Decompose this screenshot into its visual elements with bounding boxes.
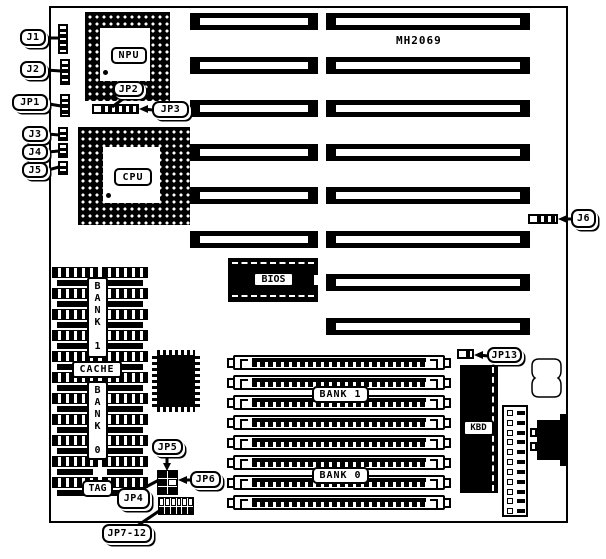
isa-slot-column-short (190, 13, 318, 248)
dip-chip (102, 414, 148, 433)
power-pin-row (507, 469, 526, 476)
jp13-jumper (457, 349, 474, 359)
callout-j5: J5 (22, 162, 48, 178)
power-pin-row (507, 479, 526, 486)
isa-slot-long (326, 13, 530, 30)
isa-slot-long (326, 144, 530, 161)
power-pin-row (507, 508, 526, 515)
power-pin-row (507, 430, 526, 437)
cache-bank1-label: B A N K 1 (87, 277, 108, 358)
dip-chip (102, 456, 148, 475)
simm-rack (233, 355, 445, 510)
isa-slot-long (326, 274, 530, 291)
kbd-label: KBD (463, 420, 494, 436)
jp2-jp3-jumper-strip (92, 104, 139, 114)
bios-dash-bottom (232, 295, 314, 297)
j3-header (58, 127, 68, 141)
jp1-header (60, 94, 70, 117)
simm-slot (233, 495, 445, 510)
isa-slot-short (190, 144, 318, 161)
cache-chip-column-right (102, 267, 148, 496)
callout-jp1: JP1 (12, 94, 48, 111)
din-pin-upper (530, 428, 537, 437)
bios-label: BIOS (253, 272, 294, 287)
cpu-label: CPU (114, 168, 152, 186)
callout-j6: J6 (571, 209, 596, 228)
j2-header (60, 59, 70, 85)
callout-j3: J3 (22, 126, 48, 142)
callout-jp5: JP5 (152, 439, 183, 455)
cpu-pin1-dot (106, 193, 111, 198)
j5-header (58, 161, 68, 175)
j6-header (528, 214, 558, 224)
isa-slot-short (190, 57, 318, 74)
callout-jp13: JP13 (487, 347, 522, 363)
power-pin-row (507, 449, 526, 456)
isa-slot-long (326, 318, 530, 335)
power-connector (502, 405, 528, 517)
simm-slot (233, 435, 445, 450)
jp4-jp5-jp6-block (157, 470, 178, 495)
isa-slot-long (326, 100, 530, 117)
dip-chip (102, 435, 148, 454)
dip-chip (102, 267, 148, 286)
jp7-12-block (158, 497, 194, 515)
power-pin-row (507, 420, 526, 427)
power-pin-row (507, 410, 526, 417)
bios-dash-top (232, 262, 314, 264)
bios-notch (314, 275, 318, 285)
power-pin-row (507, 498, 526, 505)
isa-slot-short (190, 100, 318, 117)
isa-slot-long (326, 57, 530, 74)
isa-slot-long (326, 231, 530, 248)
tag-label: TAG (82, 480, 113, 497)
j4-header (58, 143, 68, 158)
cache-label: CACHE (72, 361, 122, 378)
isa-slot-short (190, 231, 318, 248)
qfp-chip (152, 350, 200, 412)
isa-slot-short (190, 187, 318, 204)
callout-j4: J4 (22, 144, 48, 160)
callout-j2: J2 (20, 61, 46, 78)
npu-label: NPU (111, 47, 147, 64)
isa-slot-short (190, 13, 318, 30)
callout-jp6: JP6 (190, 471, 221, 488)
simm-bank1-label: BANK 1 (312, 386, 369, 403)
power-pin-row (507, 489, 526, 496)
din-pin-lower (530, 442, 537, 451)
npu-pin1-dot (103, 70, 108, 75)
motherboard-diagram: MH2069 NPU CPU BIOS (0, 0, 606, 559)
isa-slot-column-long (326, 13, 530, 335)
callout-jp2: JP2 (113, 81, 144, 97)
board-model-text: MH2069 (396, 34, 442, 47)
dip-chip (102, 330, 148, 349)
callout-j1: J1 (20, 29, 46, 46)
keyboard-din-connector (537, 420, 562, 460)
simm-slot (233, 355, 445, 370)
simm-bank0-label: BANK 0 (312, 467, 369, 484)
power-pin-row (507, 439, 526, 446)
callout-jp3: JP3 (152, 101, 189, 118)
power-pin-row (507, 459, 526, 466)
dip-chip (102, 309, 148, 328)
dip-chip (102, 288, 148, 307)
isa-slot-long (326, 187, 530, 204)
keyboard-din-connector-flange (560, 414, 568, 466)
callout-jp7-12: JP7-12 (102, 524, 152, 543)
j1-header (58, 24, 68, 54)
cache-bank0-label: B A N K 0 (87, 381, 108, 460)
dip-chip (102, 393, 148, 412)
simm-slot (233, 415, 445, 430)
callout-jp4: JP4 (117, 488, 150, 509)
